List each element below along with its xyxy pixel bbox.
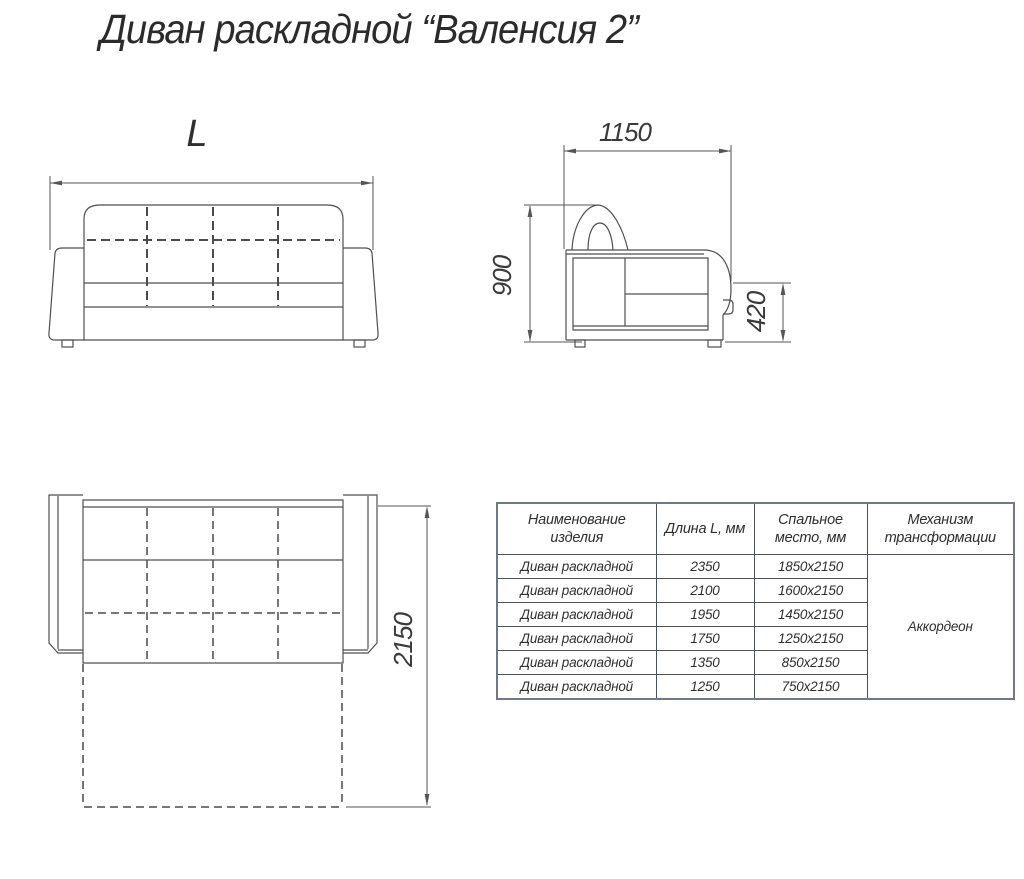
dim-arrow-left	[50, 181, 62, 186]
cell-sleeping: 1600x2150	[754, 579, 867, 603]
cell-sleeping: 1450x2150	[754, 603, 867, 627]
cell-product-name: Диван раскладной	[497, 651, 656, 675]
side-view: 1150 900	[487, 117, 791, 347]
cell-length: 1750	[656, 627, 754, 651]
cell-sleeping: 850x2150	[754, 651, 867, 675]
side-foot-right	[708, 340, 721, 347]
header-sleeping-area: Спальное место, мм	[754, 503, 867, 555]
front-foot-right	[354, 340, 365, 347]
technical-drawing-page: Диван раскладной “Валенсия 2” L 1150	[0, 0, 1024, 879]
front-foot-left	[62, 340, 73, 347]
sofa-drawing: L 1150 900	[0, 0, 1024, 879]
dim-arrow-up	[781, 283, 786, 295]
dim-arrow-left	[564, 149, 576, 154]
cell-product-name: Диван раскладной	[497, 603, 656, 627]
cell-sleeping: 1850x2150	[754, 555, 867, 579]
cell-length: 2350	[656, 555, 754, 579]
top-view-unfolded: 2150	[49, 495, 431, 807]
side-width-label: 1150	[599, 117, 652, 147]
front-length-label: L	[186, 113, 207, 155]
armrest-right-outline	[343, 495, 377, 653]
cell-sleeping: 750x2150	[754, 675, 867, 700]
bed-length-label: 2150	[388, 612, 418, 668]
seat-height-label: 420	[741, 290, 771, 332]
armrest-left-outline	[49, 495, 83, 653]
cell-product-name: Диван раскладной	[497, 675, 656, 700]
front-view: L	[49, 113, 378, 347]
cell-length: 1350	[656, 651, 754, 675]
side-height-label: 900	[487, 254, 517, 296]
header-mechanism: Механизм трансформации	[867, 503, 1014, 555]
cell-mechanism: Аккордеон	[867, 555, 1014, 700]
cell-length: 1250	[656, 675, 754, 700]
table-header-row: Наименование изделия Длина L, мм Спально…	[497, 503, 1014, 555]
dim-arrow-down	[425, 794, 430, 806]
dim-arrow-right	[361, 181, 373, 186]
header-product-name: Наименование изделия	[497, 503, 656, 555]
dim-arrow-up	[528, 205, 533, 217]
dim-arrow-right	[719, 149, 731, 154]
cell-product-name: Диван раскладной	[497, 555, 656, 579]
cell-product-name: Диван раскладной	[497, 579, 656, 603]
side-foot-left	[575, 340, 585, 347]
cell-product-name: Диван раскладной	[497, 627, 656, 651]
armrest-right	[343, 248, 378, 340]
spec-table: Наименование изделия Длина L, мм Спально…	[496, 502, 1015, 700]
armrest-left	[49, 248, 84, 340]
armrest-arch-inner	[588, 223, 613, 250]
armrest-arch-outer	[572, 205, 628, 250]
table-row: Диван раскладной 2350 1850x2150 Аккордео…	[497, 555, 1014, 579]
dim-arrow-down	[781, 330, 786, 342]
header-length: Длина L, мм	[656, 503, 754, 555]
cell-sleeping: 1250x2150	[754, 627, 867, 651]
dim-arrow-down	[528, 330, 533, 342]
cell-length: 2100	[656, 579, 754, 603]
cell-length: 1950	[656, 603, 754, 627]
dim-arrow-up	[425, 506, 430, 518]
